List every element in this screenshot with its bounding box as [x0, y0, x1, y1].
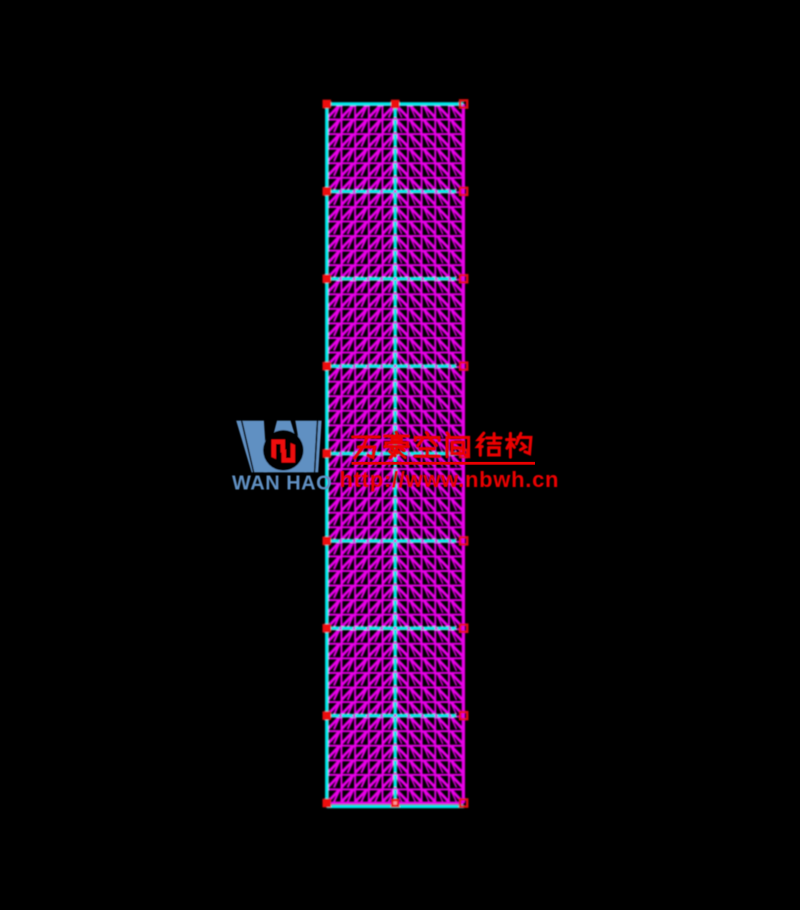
svg-text:WAN HAO: WAN HAO — [232, 473, 332, 495]
svg-text:http://www.nbwh.cn: http://www.nbwh.cn — [340, 467, 559, 492]
